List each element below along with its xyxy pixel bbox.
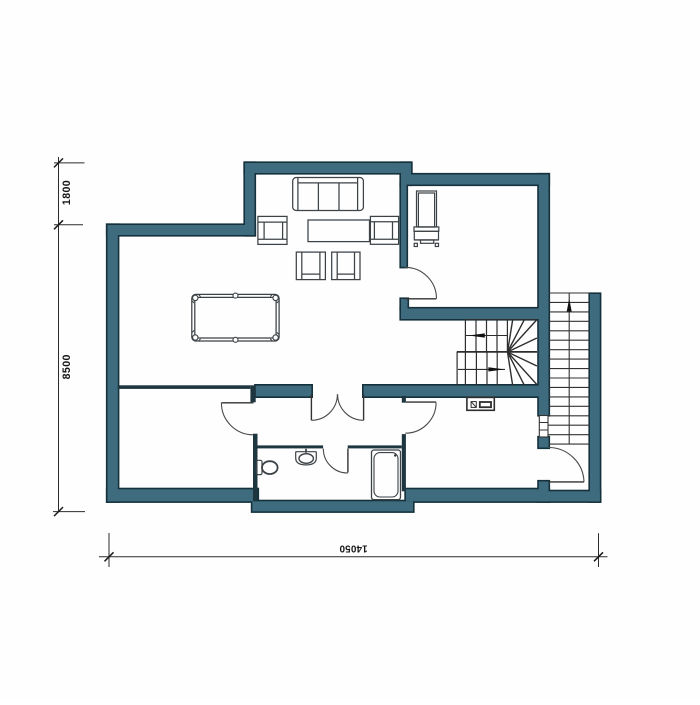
svg-text:1800: 1800	[61, 180, 73, 205]
svg-text:14050: 14050	[339, 543, 368, 554]
svg-text:8500: 8500	[61, 354, 73, 379]
